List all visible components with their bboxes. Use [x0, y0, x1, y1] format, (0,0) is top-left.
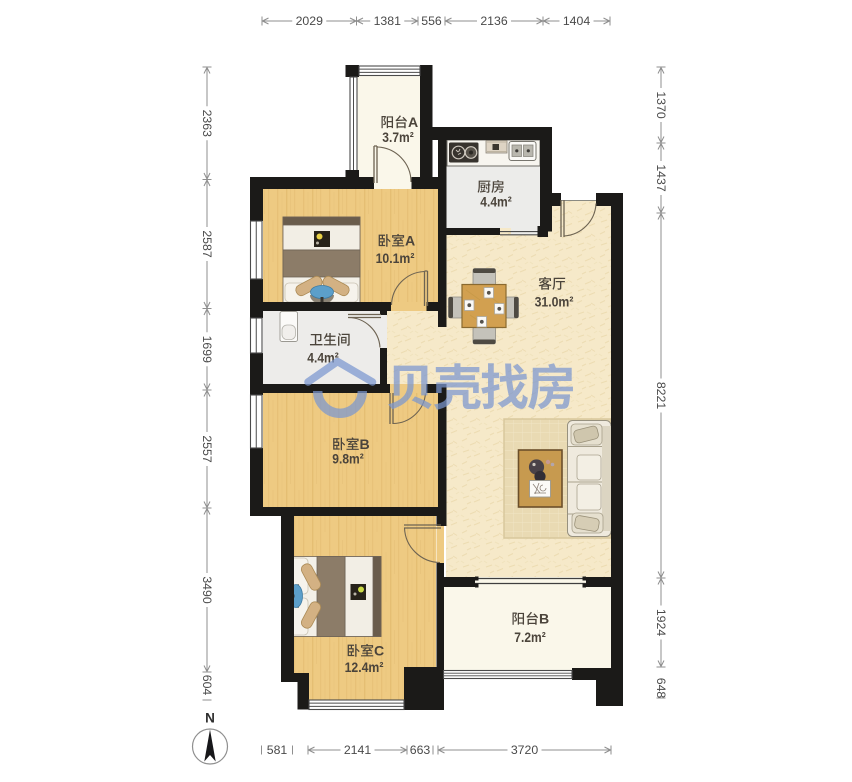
svg-text:2363: 2363 — [200, 110, 214, 138]
svg-text:1381: 1381 — [374, 14, 402, 28]
svg-text:2141: 2141 — [344, 743, 372, 757]
svg-text:604: 604 — [200, 675, 214, 696]
svg-text:2029: 2029 — [296, 14, 324, 28]
svg-text:648: 648 — [654, 678, 668, 699]
svg-text:556: 556 — [421, 14, 442, 28]
svg-text:3720: 3720 — [511, 743, 539, 757]
svg-text:3490: 3490 — [200, 576, 214, 604]
svg-text:4.4m²: 4.4m² — [480, 195, 512, 211]
svg-text:9.8m²: 9.8m² — [332, 452, 364, 468]
svg-text:A: A — [405, 232, 415, 248]
svg-text:12.4m²: 12.4m² — [345, 660, 384, 676]
svg-text:C: C — [374, 642, 384, 658]
svg-text:2136: 2136 — [480, 14, 508, 28]
svg-text:1370: 1370 — [654, 91, 668, 119]
svg-text:7.2m²: 7.2m² — [514, 630, 546, 646]
svg-text:2557: 2557 — [200, 435, 214, 463]
svg-text:B: B — [539, 610, 549, 626]
svg-text:31.0m²: 31.0m² — [535, 295, 574, 311]
svg-text:581: 581 — [267, 743, 288, 757]
svg-text:N: N — [205, 711, 215, 726]
svg-text:3.7m²: 3.7m² — [382, 130, 414, 146]
svg-text:A: A — [408, 114, 418, 130]
svg-text:663: 663 — [410, 743, 431, 757]
svg-text:10.1m²: 10.1m² — [376, 251, 415, 267]
svg-text:B: B — [360, 436, 370, 452]
svg-text:1404: 1404 — [563, 14, 591, 28]
svg-text:8221: 8221 — [654, 382, 668, 410]
svg-text:1437: 1437 — [654, 164, 668, 192]
svg-text:2587: 2587 — [200, 230, 214, 258]
svg-text:1699: 1699 — [200, 336, 214, 364]
svg-text:1924: 1924 — [654, 609, 668, 637]
